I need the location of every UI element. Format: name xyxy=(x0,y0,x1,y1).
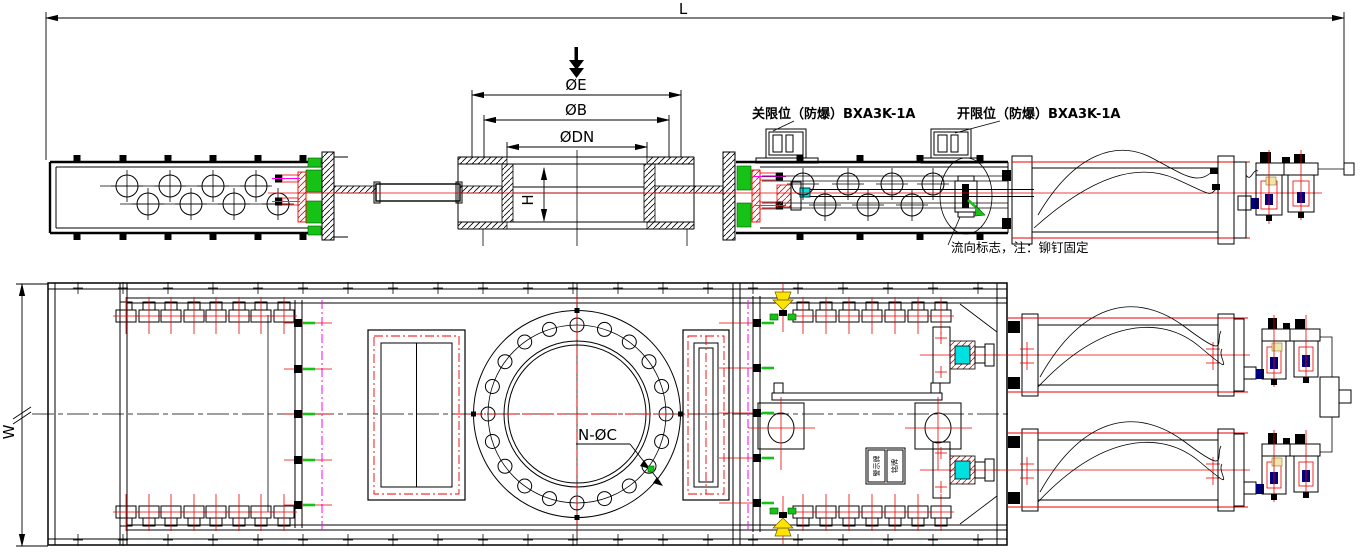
left-pad-plan xyxy=(368,330,465,500)
frl-manifold xyxy=(1262,444,1320,456)
frl-drain xyxy=(1271,494,1277,500)
fitting xyxy=(1256,369,1264,379)
eyebolt-pad xyxy=(788,508,796,514)
frl-unit-side xyxy=(1246,150,1354,224)
rail-tab xyxy=(255,233,262,240)
rail-tab xyxy=(857,155,864,162)
name-plate-label: 铭牌 xyxy=(890,459,899,473)
fitting xyxy=(1244,367,1256,379)
dim-h-label: H xyxy=(519,194,537,205)
gland-bolt xyxy=(753,364,761,372)
rail-tab xyxy=(165,233,172,240)
frl-sight xyxy=(1272,343,1282,351)
frl-drain xyxy=(1303,492,1309,498)
frl-knob xyxy=(1268,318,1277,329)
eyebolt xyxy=(773,518,793,528)
frl-manifold xyxy=(1262,329,1320,341)
flow-sign-detail: 流向标志，注：铆钉固定 xyxy=(940,158,1089,255)
dim-overall-length: L xyxy=(46,0,1344,170)
warning-plate-label: 警示牌 xyxy=(872,456,881,477)
rail-tab xyxy=(210,233,217,240)
support-frame-side xyxy=(736,155,1034,240)
air-hose xyxy=(1038,327,1224,387)
drawing-canvas: L ØE ØB ØDN xyxy=(0,0,1360,560)
dim-overall-width: W xyxy=(0,284,48,546)
rod-clevis-mounts xyxy=(920,327,1000,498)
mount-bolt xyxy=(1008,377,1020,389)
dim-b-label: ØB xyxy=(565,101,587,119)
air-hose xyxy=(1034,172,1218,228)
open-limit-switch-window xyxy=(938,135,947,152)
gland-bolt xyxy=(294,319,302,327)
eyebolt xyxy=(773,300,793,310)
junction-box xyxy=(1320,337,1351,452)
cylinder-side xyxy=(1002,150,1354,244)
eyebolt-pad xyxy=(770,508,778,514)
crosshead-guides xyxy=(748,383,972,470)
flow-green-arrow xyxy=(975,206,985,216)
dim-dn-label: ØDN xyxy=(560,128,595,146)
gland-bolt xyxy=(753,319,761,327)
valve-assembly-drawing: L ØE ØB ØDN xyxy=(0,0,1360,560)
rail-tab xyxy=(300,233,307,240)
close-limit-label: 关限位（防爆）BXA3K-1A xyxy=(752,106,915,122)
cylinder-plan xyxy=(993,307,1320,396)
eyebolt xyxy=(775,528,791,536)
air-hose xyxy=(1038,442,1224,502)
gland-bolt xyxy=(294,410,302,418)
frl-knob xyxy=(1295,319,1305,329)
nameplates: 警示牌 铭牌 xyxy=(866,448,905,484)
rail-tab xyxy=(120,155,127,162)
eyebolt xyxy=(775,292,791,300)
flange-plan: N-ØC xyxy=(455,296,700,532)
gland-bolt xyxy=(753,409,761,417)
cylinders-plan xyxy=(993,307,1320,511)
frl-knob xyxy=(1268,433,1277,444)
dim-nc-label: N-ØC xyxy=(578,426,617,444)
frl-drain xyxy=(1303,377,1309,383)
clevis-bushing xyxy=(955,346,970,364)
gland-bolt xyxy=(753,454,761,462)
rail-tab xyxy=(255,155,262,162)
frl-knob xyxy=(1295,434,1305,444)
rail-tab xyxy=(210,155,217,162)
mount-bolt xyxy=(1008,492,1020,504)
open-limit-switch-window xyxy=(951,135,958,152)
close-limit-switch-window xyxy=(786,135,793,152)
gland-bolt xyxy=(294,456,302,464)
fitting xyxy=(1244,482,1256,494)
frl-drain xyxy=(1271,379,1277,385)
eyebolt-nut xyxy=(779,512,787,518)
mount-bolt xyxy=(1008,436,1020,448)
valve-body-side: H xyxy=(458,150,694,246)
air-hose xyxy=(1038,150,1214,215)
rail-tab xyxy=(857,233,864,240)
rail-tab xyxy=(120,233,127,240)
frl-sight xyxy=(1272,458,1282,466)
dim-w-label: W xyxy=(0,424,18,439)
gland-bolt xyxy=(294,365,302,373)
cylinder-plan xyxy=(993,422,1320,511)
limit-switches xyxy=(756,129,983,163)
rail-tab xyxy=(74,155,81,162)
flow-note-label: 流向标志，注：铆钉固定 xyxy=(951,240,1089,255)
rail-tab xyxy=(917,233,924,240)
side-elevation-view: L ØE ØB ØDN xyxy=(46,0,1354,255)
clevis-bushing xyxy=(955,461,970,479)
gland-bolt xyxy=(753,499,761,507)
plan-view: W xyxy=(0,282,1351,546)
flow-direction-arrow xyxy=(569,47,584,78)
rail-tab xyxy=(797,233,804,240)
eyebolt-nut xyxy=(779,310,787,316)
frl-knob xyxy=(1283,438,1290,444)
rail-tab xyxy=(165,155,172,162)
rail-tab xyxy=(74,233,81,240)
eyebolt-pad xyxy=(788,314,796,320)
mount-bolt xyxy=(1008,321,1020,333)
rail-tab xyxy=(300,155,307,162)
frl-knob xyxy=(1283,323,1290,329)
open-limit-label: 开限位（防爆）BXA3K-1A xyxy=(957,106,1120,122)
gland-bolt xyxy=(294,501,302,509)
rail-tab xyxy=(977,233,984,240)
dim-l-label: L xyxy=(679,0,688,18)
dim-e-label: ØE xyxy=(565,76,586,94)
fitting xyxy=(1256,484,1264,494)
eyebolt-pad xyxy=(770,314,778,320)
left-packing-gland xyxy=(272,152,348,240)
close-limit-switch-window xyxy=(773,135,782,152)
right-pad-plan xyxy=(683,330,729,500)
gate-stem-left xyxy=(334,182,502,203)
